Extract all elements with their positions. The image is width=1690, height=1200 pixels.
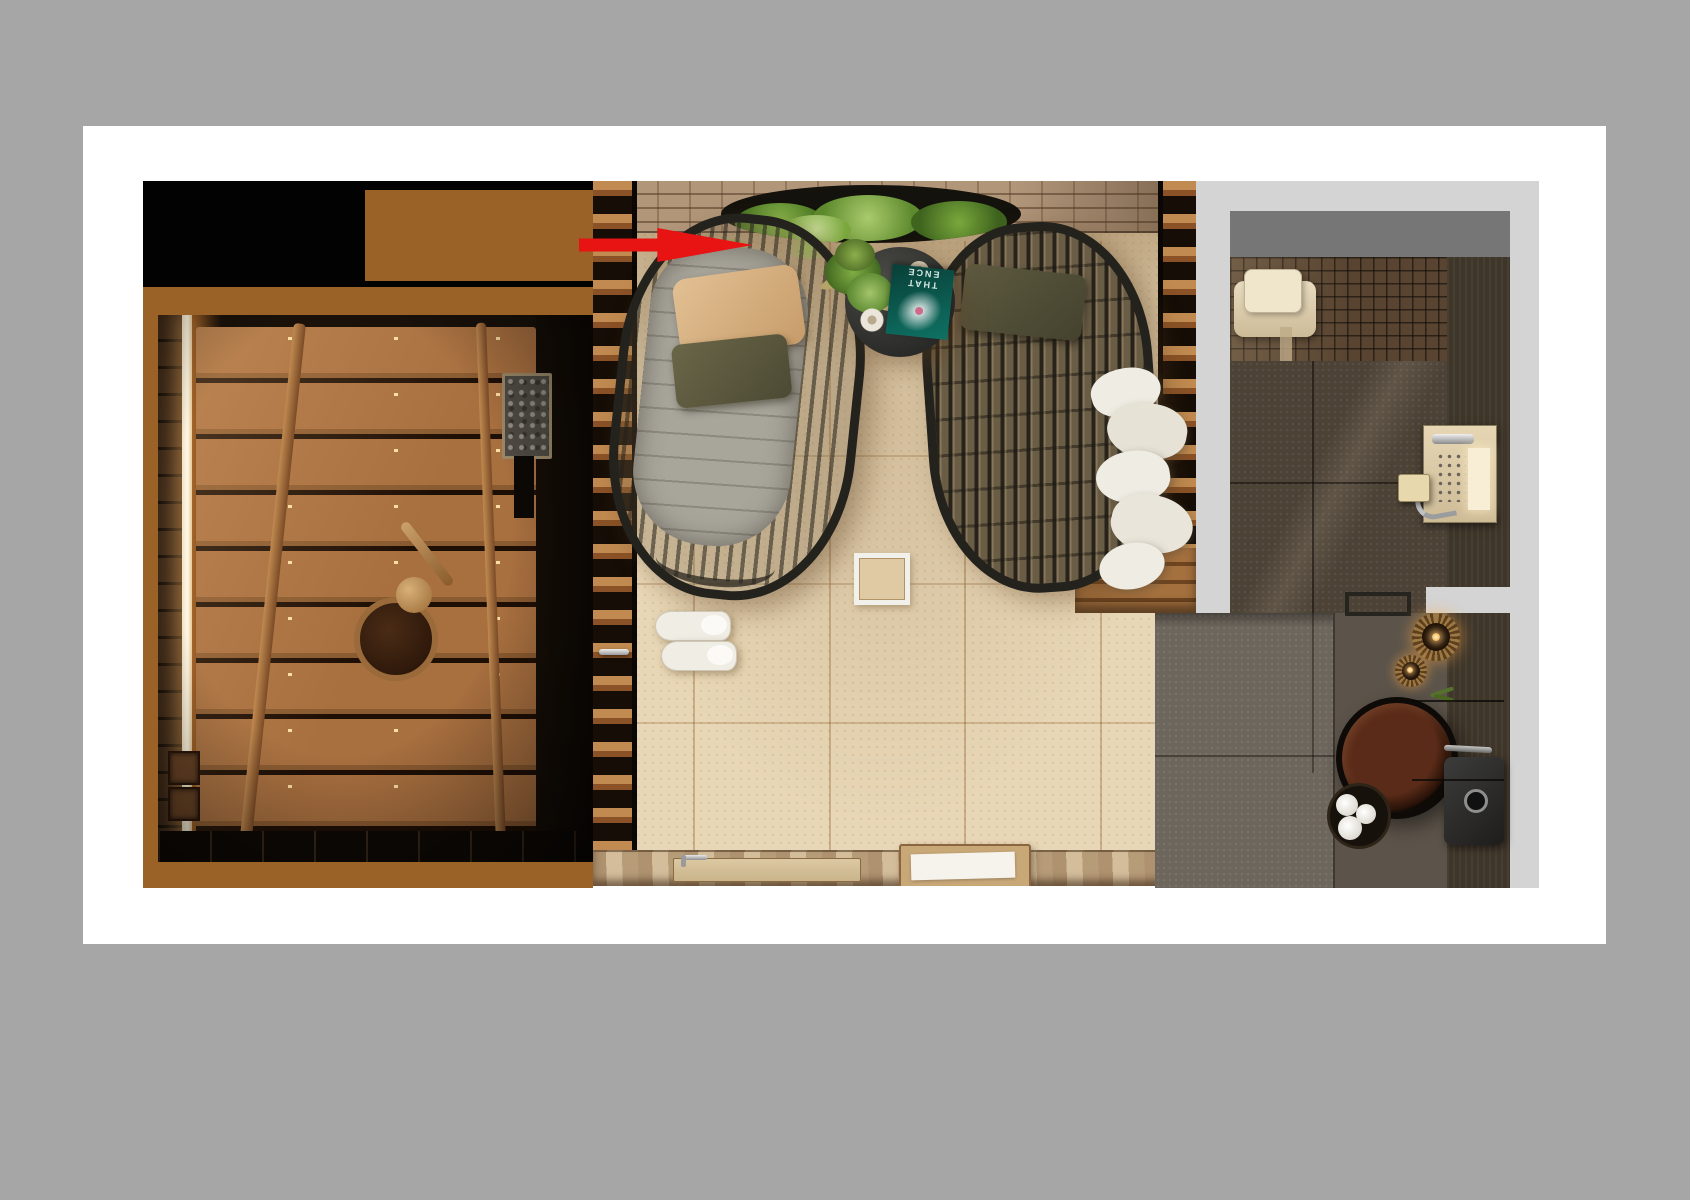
gray-matte-strip-right	[1510, 211, 1539, 888]
magazine-teal-cover: THAT ENCE	[886, 264, 955, 340]
towel-bar-post	[1345, 592, 1349, 616]
floor-rail-line	[1412, 700, 1504, 702]
panel-light	[1468, 448, 1490, 510]
potted-plant	[835, 239, 875, 271]
towel-bar-post	[1407, 592, 1411, 616]
soap-shelf	[1398, 474, 1430, 502]
gray-matte-band-top	[1196, 181, 1539, 211]
gray-matte-block	[1426, 587, 1513, 613]
floor-grout-line	[1155, 755, 1335, 757]
glass-door-handle	[599, 649, 629, 655]
shower-control-panel	[1423, 425, 1497, 523]
candle-flame	[1432, 633, 1440, 641]
sauna-vignette	[158, 315, 593, 862]
trough-faucet-stem	[681, 855, 686, 867]
gray-matte-strip-left	[1196, 211, 1230, 613]
rattan-candle-small	[1395, 655, 1427, 687]
olive-pillow	[671, 333, 793, 409]
screenshot-stage: THAT ENCE	[0, 0, 1690, 1200]
round-side-table: THAT ENCE	[845, 247, 955, 357]
tray-white-towel	[911, 852, 1016, 881]
slipper-sole	[701, 615, 727, 635]
white-ring-tray	[859, 307, 885, 333]
candle-flame	[1407, 667, 1413, 673]
floor-drain-plate	[854, 553, 910, 605]
rattan-candle-large	[1412, 613, 1460, 661]
relaxation-room-photo: THAT ENCE	[593, 181, 1196, 886]
slipper	[655, 611, 731, 641]
floor-grout-line	[1312, 361, 1314, 613]
rolled-towel	[1338, 816, 1362, 840]
sauna-room-photo	[158, 315, 593, 862]
towel-bar	[1345, 612, 1411, 616]
foot-rinse-trough	[673, 858, 861, 882]
panel-chrome-bar	[1432, 434, 1474, 444]
rolled-towel	[1336, 794, 1358, 816]
sink-drain	[1464, 789, 1488, 813]
spa-slippers	[655, 611, 755, 681]
wooden-tray	[899, 844, 1031, 886]
folded-towel	[1244, 269, 1302, 313]
towel-basket	[1327, 783, 1391, 849]
floor-grout-line	[1312, 613, 1314, 773]
floor-rail-line	[1412, 779, 1504, 781]
slipper-sole	[707, 645, 733, 665]
lounge-chair-cushioned	[596, 202, 861, 592]
dark-sink	[1444, 757, 1504, 845]
bathroom-gray-wall	[1230, 211, 1510, 257]
olive-pillow	[959, 263, 1087, 341]
towel-bar	[1345, 592, 1411, 596]
slipper	[661, 641, 737, 671]
brown-mask-rectangle	[365, 190, 593, 281]
